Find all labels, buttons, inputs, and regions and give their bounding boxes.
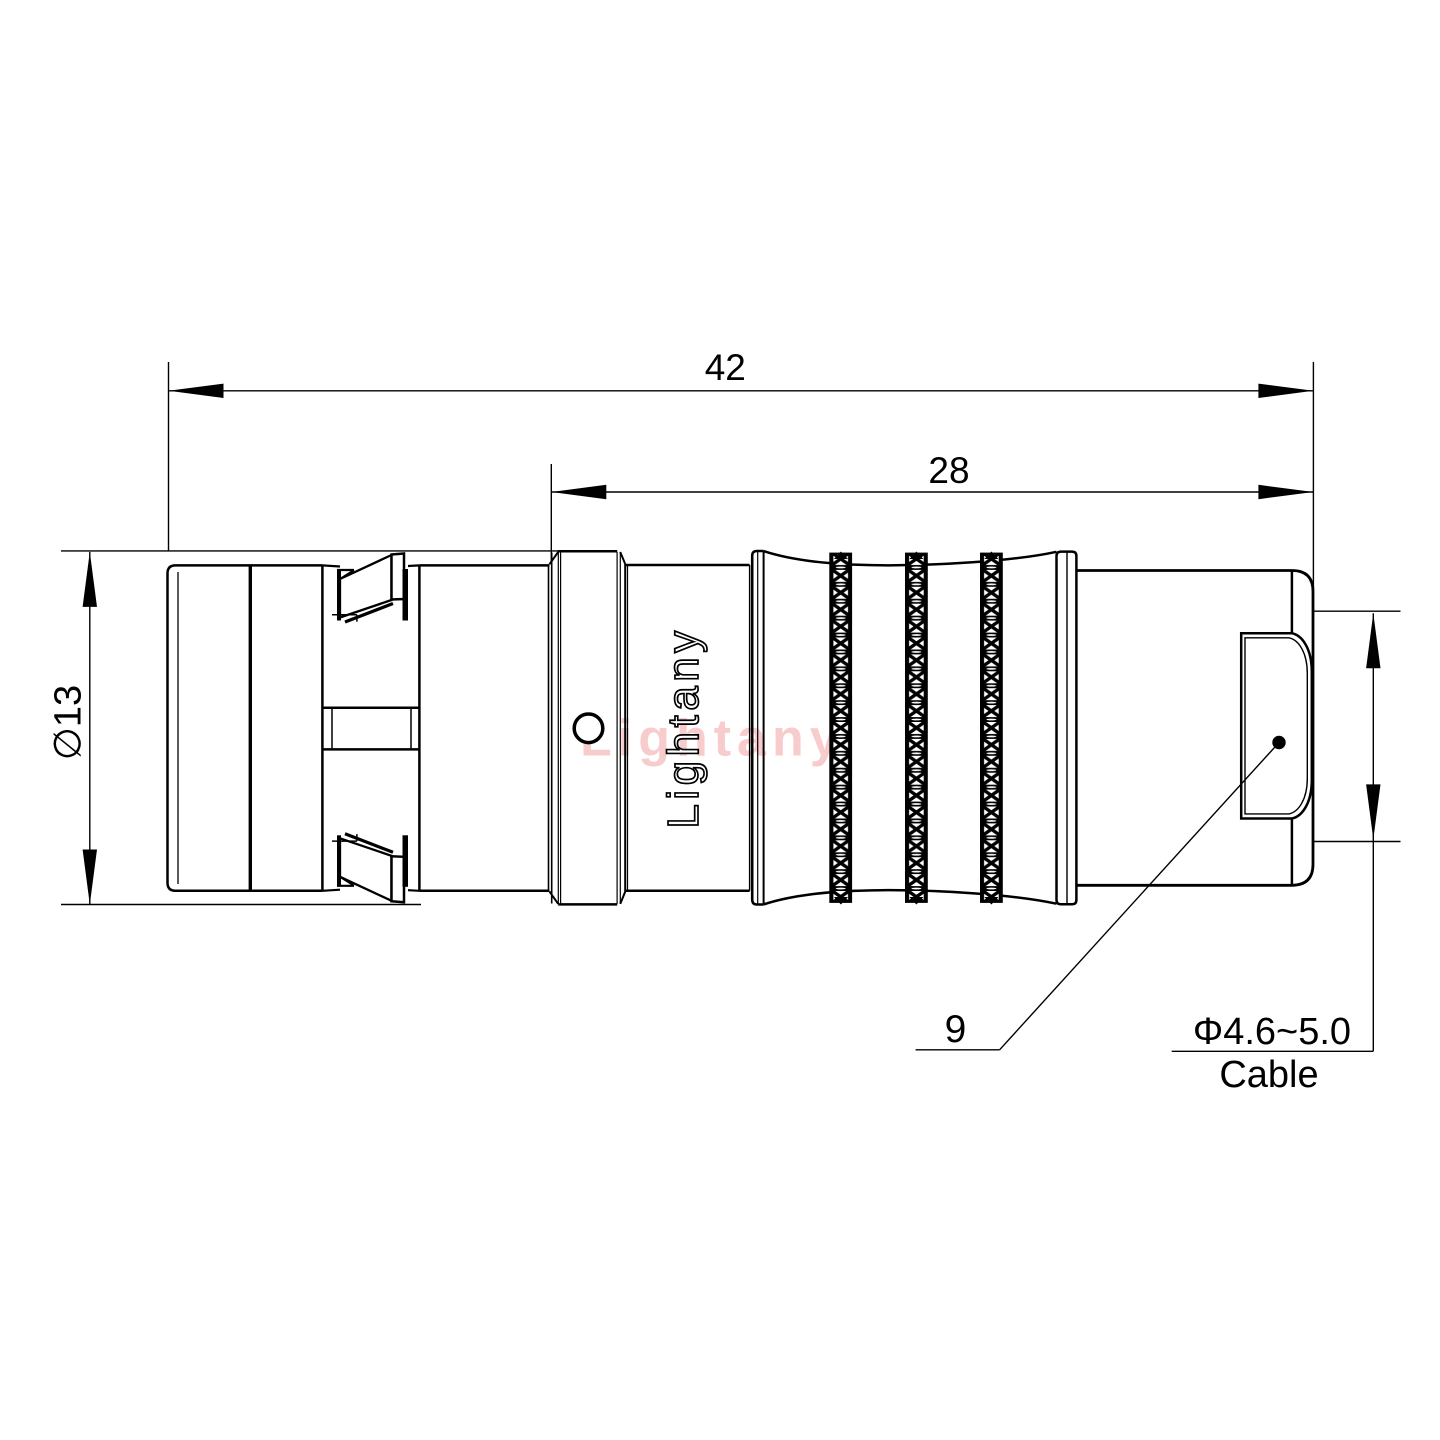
svg-text:Cable: Cable: [1219, 1054, 1318, 1096]
svg-text:28: 28: [928, 450, 969, 491]
svg-text:Φ4.6~5.0: Φ4.6~5.0: [1193, 1011, 1351, 1053]
svg-text:9: 9: [945, 1008, 967, 1051]
svg-text:42: 42: [705, 347, 746, 388]
svg-text:Lightany: Lightany: [659, 626, 708, 828]
svg-text:∅13: ∅13: [48, 685, 90, 760]
